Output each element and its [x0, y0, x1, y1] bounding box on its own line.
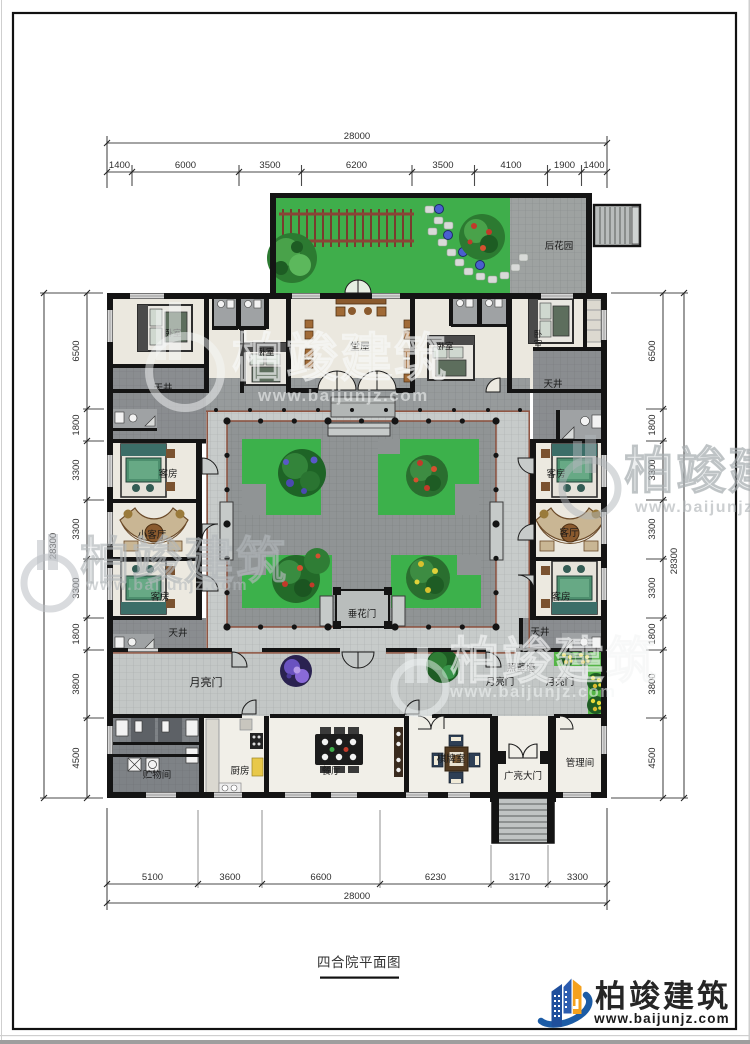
svg-text:1400: 1400 — [583, 160, 604, 171]
svg-text:柏竣建筑: 柏竣建筑 — [595, 979, 731, 1014]
svg-text:4500: 4500 — [647, 747, 658, 768]
svg-text:客厅: 客厅 — [559, 527, 579, 539]
svg-text:28000: 28000 — [344, 891, 370, 902]
svg-text:贮物间: 贮物间 — [143, 769, 172, 781]
svg-text:餐厅: 餐厅 — [321, 765, 341, 777]
svg-text:后花园: 后花园 — [545, 240, 574, 252]
svg-text:柏竣建筑: 柏竣建筑 — [624, 443, 750, 499]
svg-text:厨房: 厨房 — [230, 765, 249, 777]
svg-text:www.baijunjz.com: www.baijunjz.com — [634, 499, 750, 516]
svg-text:www.baijunjz.com: www.baijunjz.com — [449, 683, 616, 701]
svg-text:客房: 客房 — [158, 468, 177, 480]
svg-text:柏竣建筑: 柏竣建筑 — [232, 330, 448, 388]
svg-text:3500: 3500 — [259, 160, 280, 171]
svg-text:柏竣建筑: 柏竣建筑 — [450, 633, 658, 689]
svg-text:3300: 3300 — [647, 577, 658, 598]
svg-text:月亮门: 月亮门 — [190, 675, 223, 689]
svg-text:3300: 3300 — [71, 459, 82, 480]
svg-text:6000: 6000 — [175, 160, 196, 171]
svg-text:3600: 3600 — [219, 872, 240, 883]
svg-text:广亮大门: 广亮大门 — [504, 770, 542, 782]
svg-text:垂花门: 垂花门 — [348, 608, 377, 620]
svg-text:28000: 28000 — [344, 131, 370, 142]
svg-text:3300: 3300 — [647, 518, 658, 539]
svg-text:4100: 4100 — [500, 160, 521, 171]
svg-text:6500: 6500 — [647, 340, 658, 361]
svg-text:1800: 1800 — [647, 414, 658, 435]
svg-text:3300: 3300 — [567, 872, 588, 883]
svg-text:www.baijunjz.com: www.baijunjz.com — [593, 1011, 730, 1026]
svg-text:3800: 3800 — [71, 673, 82, 694]
svg-text:卧: 卧 — [534, 329, 543, 339]
svg-text:5100: 5100 — [142, 872, 163, 883]
svg-text:棋牌室: 棋牌室 — [437, 753, 466, 765]
svg-text:4500: 4500 — [71, 747, 82, 768]
svg-text:管理间: 管理间 — [566, 757, 595, 769]
svg-text:3500: 3500 — [432, 160, 453, 171]
svg-text:www.baijunjz.com: www.baijunjz.com — [85, 577, 248, 594]
svg-text:客房: 客房 — [551, 591, 570, 603]
svg-text:1900: 1900 — [554, 160, 575, 171]
svg-text:6230: 6230 — [425, 872, 446, 883]
svg-text:www.baijunjz.com: www.baijunjz.com — [257, 386, 429, 405]
svg-text:3170: 3170 — [509, 872, 530, 883]
svg-text:6500: 6500 — [71, 340, 82, 361]
svg-text:天井: 天井 — [168, 627, 187, 639]
svg-text:1800: 1800 — [71, 414, 82, 435]
svg-text:28300: 28300 — [669, 548, 680, 574]
svg-text:6200: 6200 — [346, 160, 367, 171]
svg-text:1800: 1800 — [71, 623, 82, 644]
svg-text:1400: 1400 — [109, 160, 130, 171]
svg-text:四合院平面图: 四合院平面图 — [317, 955, 401, 970]
svg-text:6600: 6600 — [310, 872, 331, 883]
svg-text:室: 室 — [534, 339, 543, 349]
svg-text:天井: 天井 — [543, 378, 562, 390]
